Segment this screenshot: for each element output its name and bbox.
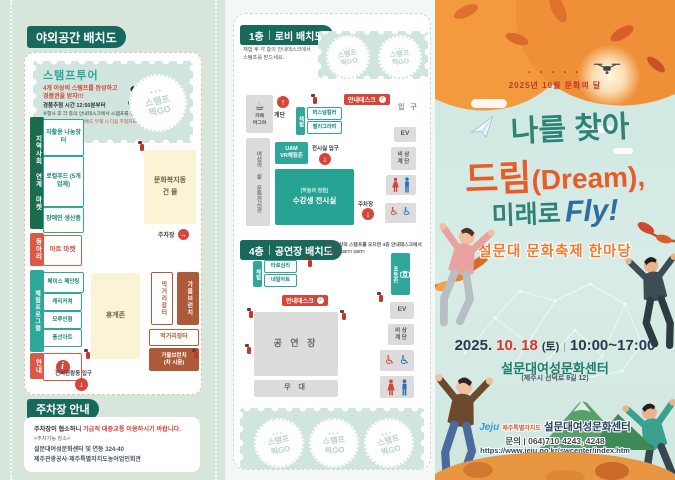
exhibit-wing-entrance-label: 전시관람동 입구	[55, 369, 92, 377]
sun-glow	[577, 44, 641, 108]
stage-box: 무 대	[254, 380, 338, 397]
hall-note: 4개 이상의 스탬프를 모으면 4층 안내데스크에서 경품권 GET! GET!	[326, 242, 428, 256]
elevator-box: EV	[390, 302, 414, 319]
lobby-program-bar: 체험	[296, 107, 305, 135]
lobby-program-box: 퍼스널컬러	[307, 107, 342, 120]
bush	[545, 470, 585, 480]
club-bar: 동아리	[30, 233, 44, 266]
stamp-tour-heading: 스탬프투어	[43, 67, 99, 83]
organizer-small: 제주특별자치도	[502, 423, 541, 432]
market-box: 장애인 생산품	[43, 207, 84, 233]
bush	[595, 462, 629, 480]
info-desk-label: 안내데스크	[286, 296, 314, 305]
venue-address: (제주시 선덕로 8길 12)	[435, 373, 675, 383]
hall-program-box: 타로심리	[264, 260, 297, 273]
concert-hall-box: 공 연 장	[254, 312, 338, 376]
outdoor-map-title-label: 야외공간 배치도	[36, 29, 117, 46]
camera-icon	[400, 270, 410, 278]
fire-extinguisher-icon	[245, 344, 252, 354]
info-icon: i	[379, 96, 386, 103]
info-icon: i	[317, 297, 324, 304]
exhibit-entrance-label: 전시실 입구	[312, 144, 339, 152]
event-time: 10:00~17:00	[570, 337, 656, 354]
accessible-box: ♿ ♿	[385, 203, 416, 223]
emergency-line-2: 계 단	[398, 159, 410, 166]
outdoor-panel: 야외공간 배치도 스탬프투어 4개 이상의 스탬프를 완성하고 경품권을 받자!…	[0, 0, 225, 480]
autumn-brunch-line2: (차 시음)	[164, 360, 184, 367]
parking-sub: <주차가능 장소>	[34, 435, 70, 442]
rest-zone-box: 휴게존	[91, 273, 140, 359]
arrow-down-icon: ↓	[75, 378, 88, 391]
photo-zone-label: 포토존	[391, 266, 398, 283]
organizer-name: 설문대여성문화센터	[544, 419, 631, 434]
hall-note-2: 경품권 GET! GET!	[326, 249, 428, 256]
floorplan-panel: 1층로비 배치도 체험 후 각 층의 안내데스크에서 스탬프를 받으세요. + …	[225, 0, 435, 480]
hall-note-1: 4개 이상의 스탬프를 모으면 4층 안내데스크에서	[326, 242, 428, 249]
title2-english: (Dream)	[531, 161, 638, 196]
fire-extinguisher-icon	[192, 349, 199, 359]
stamp-seal: + + + 스탬프 찍GO	[249, 413, 308, 470]
floorplan-card: 1층로비 배치도 체험 후 각 층의 안내데스크에서 스탬프를 받으세요. + …	[233, 13, 431, 470]
fire-extinguisher-icon	[311, 94, 318, 104]
wheelchair-icon: ♿	[384, 353, 395, 368]
outdoor-map-title: 야외공간 배치도	[27, 26, 126, 48]
gallery-name: 수강생 전시실	[293, 196, 336, 205]
date-month-day: 10. 18	[496, 337, 538, 354]
stamp-seal: + + + 스탬프 찍GO	[307, 416, 361, 470]
title3-korean: 미래로	[491, 200, 561, 230]
lobby-note-2: 스탬프를 받으세요.	[243, 55, 311, 63]
cafe-label-1: 카페	[255, 114, 264, 120]
uam-vr-box: UAM VR체험존	[275, 142, 308, 164]
event-date-row: 2025. 10. 18 (토) | 10:00~17:00	[435, 337, 675, 354]
stamp-strip-bottom: + + + 스탬프 찍GO + + + 스탬프 찍GO + + + 스탬프 찍G…	[240, 408, 424, 470]
bush	[463, 462, 493, 478]
parking-place-1: 설문대여성문화센터 및 연동 324-40	[34, 444, 124, 453]
date-weekday: (토)	[542, 338, 559, 354]
building-box: 문화복지동 건 물	[144, 150, 196, 224]
wheelchair-icon: ♿	[389, 206, 399, 220]
info-bar: 안내	[30, 353, 44, 379]
parking-guide-card: 주차장이 협소하니 가급적 대중교통 이용하시기 바랍니다. <주차가능 장소>…	[24, 417, 200, 472]
seal-text: 찍GO	[340, 57, 359, 68]
parking-notice: 주차장이 협소하니 가급적 대중교통 이용하시기 바랍니다.	[34, 424, 181, 433]
fire-extinguisher-icon	[84, 349, 91, 359]
emergency-line-2: 계 단	[395, 335, 407, 342]
stamp-strip: + + + 스탬프 찍GO + + + 스탬프 찍GO	[318, 31, 428, 79]
uam-line-2: VR체험존	[280, 153, 303, 160]
building-name2: 건 물	[163, 189, 178, 198]
parking-guide-title: 주차장 안내	[27, 399, 99, 419]
wheelchair-icon: ♿	[399, 353, 410, 368]
building-name: 문화복지동	[154, 177, 186, 186]
date-year: 2025.	[455, 337, 493, 354]
accessible-box: ♿ ♿	[380, 350, 414, 371]
emergency-stairs-box: 비 상 계 단	[388, 324, 414, 345]
seal-text: 찍GO	[324, 445, 345, 456]
divider: |	[563, 342, 566, 353]
hall-floor: 4층	[249, 243, 264, 258]
emergency-stairs-box: 비 상 계 단	[391, 147, 416, 170]
lobby-floor: 1층	[249, 28, 264, 43]
man-icon	[403, 177, 411, 193]
fold-line	[215, 0, 217, 480]
program-bar: 체험프로그램	[30, 270, 44, 352]
fire-extinguisher-icon	[377, 292, 384, 302]
uam-line-1: UAM	[285, 146, 298, 153]
stamp-tour-line3: 경품추첨 시간 12:50분부터	[43, 101, 106, 109]
outdoor-map-card: 스탬프투어 4개 이상의 스탬프를 완성하고 경품권을 받자!!! 경품추첨 시…	[24, 52, 202, 395]
market-bar: 지역사회 연계 마켓	[30, 117, 44, 229]
title3-english: Fly!	[564, 194, 618, 229]
stairs-up-icon: ↑	[277, 96, 289, 108]
student-gallery-box: [하늘의 정원] 수강생 전시실	[275, 169, 354, 225]
coffee-icon: ☕	[255, 102, 265, 113]
fire-extinguisher-icon	[340, 310, 347, 320]
lobby-entrance-label: 입 구	[398, 102, 419, 112]
food-street-vertical: 먹거리장터	[151, 272, 173, 325]
cafe-box: ☕ 카페 머그야	[246, 95, 273, 133]
gallery-tag: [하늘의 정원]	[301, 188, 329, 194]
lobby-info-desk-badge: 안내데스크 i	[344, 94, 390, 105]
market-box: 로컬푸드 (5개업체)	[43, 156, 84, 207]
program-box: 풍선아트	[43, 329, 82, 347]
lobby-note-1: 체험 후 각 층의 안내데스크에서	[243, 47, 311, 55]
program-box: 캐리커쳐	[43, 293, 82, 311]
emergency-line-1: 비 상	[395, 328, 407, 335]
eyebrow-dots: • • • • •	[435, 70, 675, 76]
man-icon	[400, 379, 409, 396]
program-box: 모루인형	[43, 311, 82, 329]
lobby-note: 체험 후 각 층의 안내데스크에서 스탬프를 받으세요.	[243, 47, 311, 63]
hall-title-label: 공연장 배치도	[275, 243, 333, 258]
parking-notice-black: 주차장이 협소하니	[34, 426, 83, 433]
parking-notice-red: 가급적 대중교통 이용하시기 바랍니다.	[83, 426, 181, 433]
parking-pointer: 주차장 →	[158, 229, 189, 240]
brochure-page: 야외공간 배치도 스탬프투어 4개 이상의 스탬프를 완성하고 경품권을 받자!…	[0, 0, 675, 480]
autumn-brunch-line1: 가을브런치	[161, 353, 186, 360]
restroom-box	[386, 175, 416, 195]
lobby-title-label: 로비 배치도	[275, 28, 324, 43]
info-desk-label: 안내데스크	[348, 95, 376, 104]
elevator-box: EV	[394, 127, 416, 142]
lobby-program-box: 캘리그라피	[307, 121, 342, 134]
restroom-box	[380, 376, 414, 398]
photo-zone-box: 포토존	[391, 253, 410, 295]
stamp-seal: + + + 스탬프 찍GO	[376, 33, 424, 81]
food-street-box: 먹거리장터	[149, 329, 199, 346]
organizer-row: Jeju 제주특별자치도 설문대여성문화센터	[435, 419, 675, 434]
fire-extinguisher-icon	[306, 257, 313, 267]
lobby-parking-label: 주차장	[358, 200, 373, 208]
market-box: 자활용 나눔장터	[43, 119, 84, 156]
stairs-label: 계단	[274, 110, 285, 119]
divider	[269, 245, 270, 255]
woman-icon	[386, 379, 396, 396]
divider	[269, 30, 270, 40]
fire-extinguisher-icon	[247, 308, 254, 318]
stamp-seal: + + + 스탬프 찍GO	[322, 31, 374, 83]
hall-info-desk-badge: 안내데스크 i	[282, 295, 328, 306]
wheelchair-icon: ♿	[402, 206, 412, 220]
arrow-right-icon: →	[178, 229, 189, 240]
arrow-down-icon: ↓	[319, 153, 331, 165]
jeju-logo: Jeju	[479, 422, 499, 433]
parking-guide-title-label: 주차장 안내	[36, 401, 90, 417]
title2-korean: 드림	[465, 157, 533, 200]
emergency-line-1: 비 상	[398, 152, 410, 159]
title2-comma: ,	[637, 161, 646, 192]
fold-line	[10, 0, 12, 480]
parking-place-2: 제주관광공사·제주특별자치도농어업인회관	[34, 454, 141, 463]
cover-panel: • • • • • 2025년 10월 문화의 달 나를 찾아 드림(Dream…	[435, 0, 675, 480]
seal-text: 찍GO	[392, 58, 410, 68]
parking-label: 주차장	[158, 230, 175, 239]
stamp-seal: + + + 스탬프 찍GO	[124, 69, 193, 138]
program-box: 페이스 페인팅	[43, 272, 84, 293]
cafe-label-2: 머그야	[253, 121, 266, 127]
hall-program-bar: 체험	[253, 261, 262, 287]
woman-icon	[391, 177, 400, 193]
arrow-down-icon: ↓	[362, 208, 374, 220]
autumn-brunch-vertical: 가을브런치	[177, 272, 199, 325]
eyebrow-text: 2025년 10월 문화의 달	[435, 80, 675, 91]
stamp-seal: + + + 스탬프 찍GO	[358, 412, 419, 470]
gallery-box: 여성의 삶 문화전시관	[246, 138, 270, 226]
hall-program-box: 네일아트	[264, 274, 297, 287]
club-box: 아트 마켓	[43, 235, 82, 266]
